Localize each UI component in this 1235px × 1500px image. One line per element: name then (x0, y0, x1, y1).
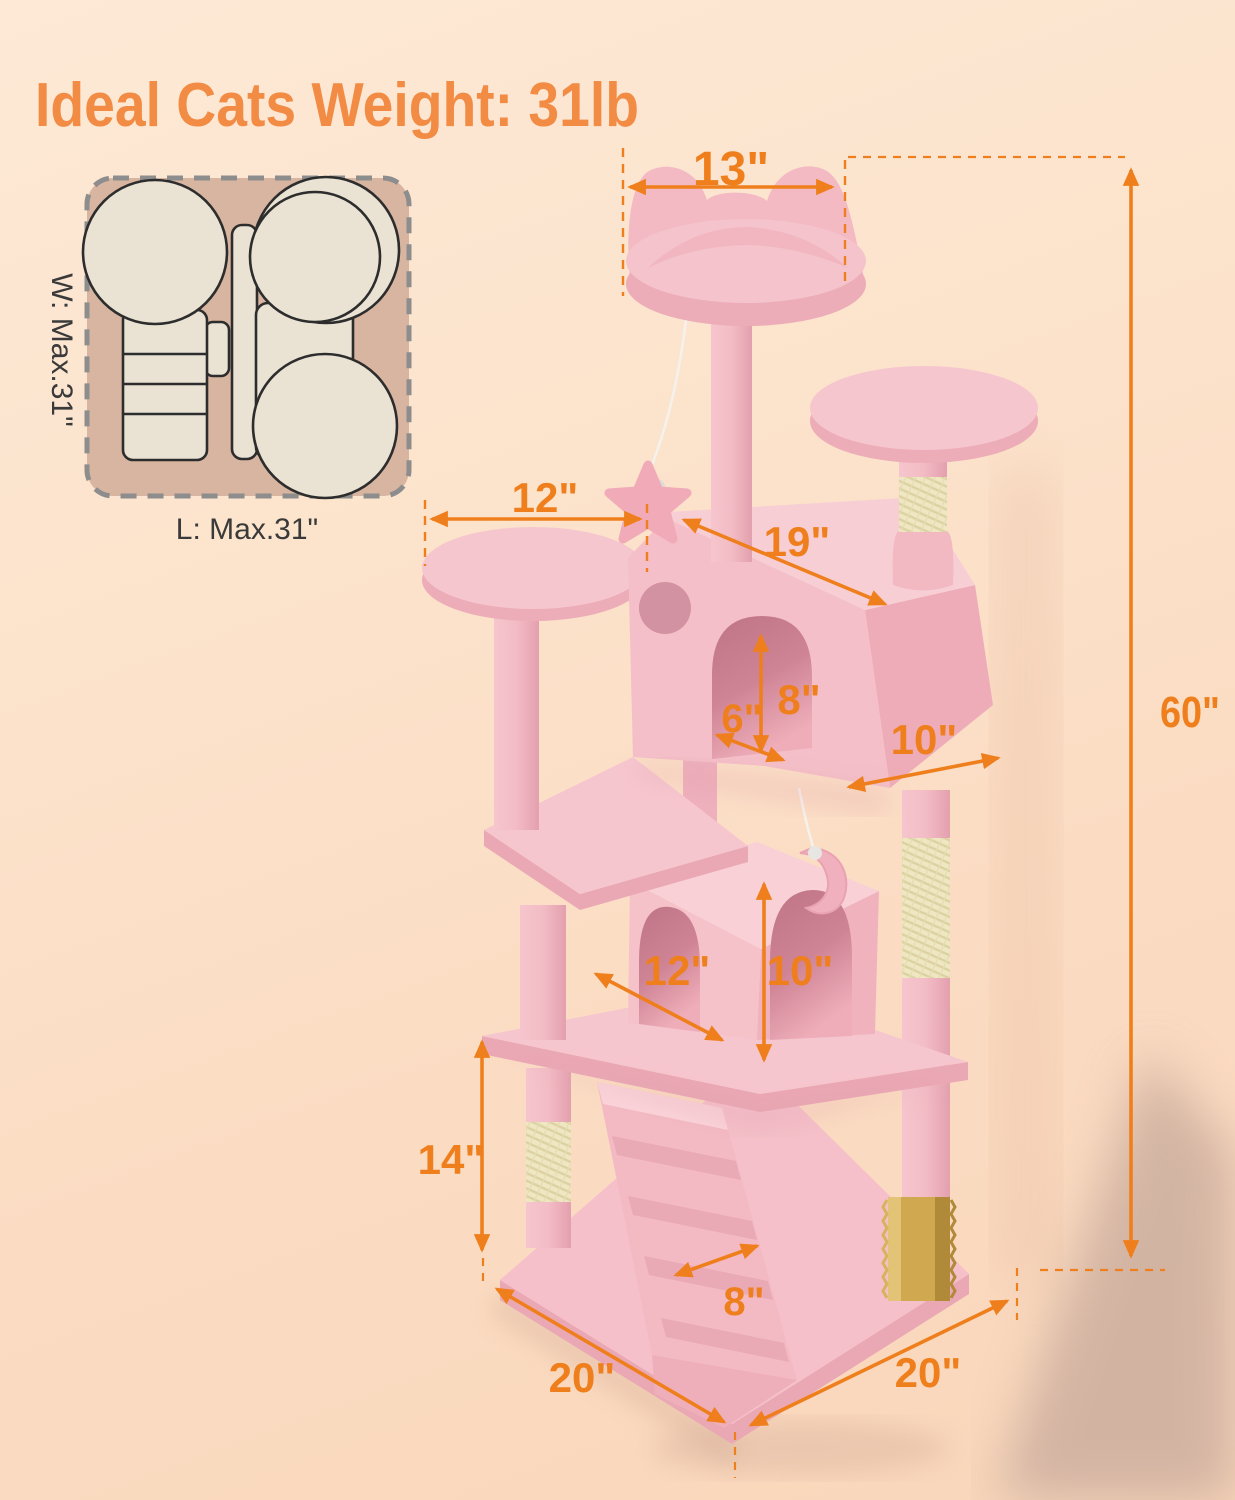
svg-text:19": 19" (764, 518, 831, 565)
svg-text:L: Max.31": L: Max.31" (176, 513, 318, 546)
svg-text:13": 13" (693, 143, 769, 196)
svg-text:8": 8" (723, 1280, 764, 1324)
svg-text:10": 10" (891, 716, 958, 763)
svg-text:Ideal Cats Weight: 31lb: Ideal Cats Weight: 31lb (35, 71, 639, 140)
svg-text:W: Max.31": W: Max.31" (45, 273, 78, 426)
svg-text:10": 10" (767, 947, 834, 994)
svg-text:8": 8" (777, 676, 820, 723)
svg-text:20": 20" (895, 1349, 962, 1396)
svg-text:14": 14" (418, 1136, 485, 1183)
svg-text:20": 20" (549, 1354, 616, 1401)
svg-text:6": 6" (721, 697, 762, 741)
svg-text:12": 12" (512, 474, 579, 521)
svg-text:60": 60" (1160, 688, 1220, 737)
svg-text:12": 12" (644, 947, 711, 994)
